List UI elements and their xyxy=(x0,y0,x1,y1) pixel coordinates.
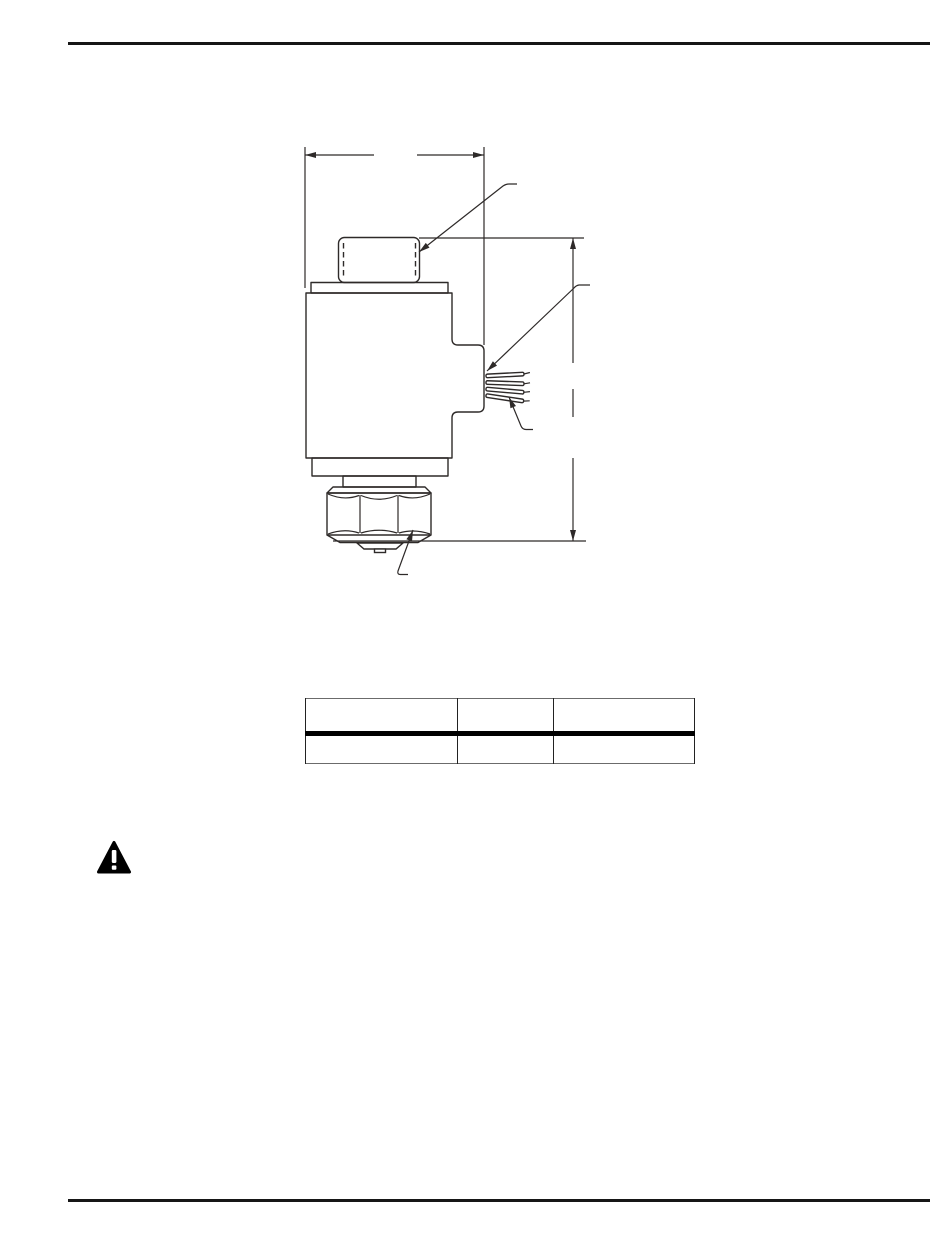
spec-table xyxy=(305,698,695,764)
table-cell xyxy=(306,734,458,764)
leader-wire-exit xyxy=(487,285,590,371)
warning-triangle-icon xyxy=(96,838,132,876)
height-dimension xyxy=(333,238,586,541)
valve-stem xyxy=(357,543,403,549)
table-header-row xyxy=(306,699,695,734)
coil-cap xyxy=(339,238,420,283)
warning-section xyxy=(96,838,132,876)
upper-flange xyxy=(311,283,448,294)
dimension-drawing xyxy=(0,0,950,1241)
stem-tip xyxy=(375,549,386,553)
leader-cap xyxy=(419,184,517,252)
width-dimension xyxy=(305,147,484,345)
nut-neck xyxy=(343,476,416,487)
table-header-cell xyxy=(554,699,695,734)
leader-nut xyxy=(398,530,413,575)
table-header-cell xyxy=(458,699,554,734)
table-row xyxy=(306,734,695,764)
table-cell xyxy=(554,734,695,764)
footer-rule xyxy=(68,1199,930,1202)
coil-body xyxy=(306,293,484,458)
lower-flange xyxy=(312,458,448,476)
callout-leaders xyxy=(398,184,590,575)
document-page xyxy=(0,0,950,1241)
lead-wires xyxy=(486,372,530,404)
retaining-nut xyxy=(327,487,431,553)
table-cell xyxy=(458,734,554,764)
table-header-cell xyxy=(306,699,458,734)
